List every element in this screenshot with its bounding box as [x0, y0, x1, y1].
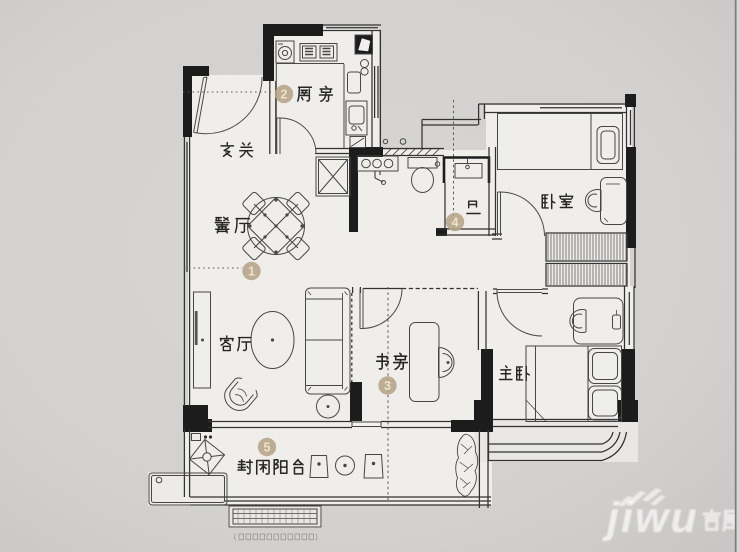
svg-text:1: 1	[248, 265, 255, 279]
svg-text:jiwu: jiwu	[602, 494, 699, 542]
svg-text:5: 5	[264, 441, 271, 455]
svg-text:3: 3	[384, 379, 391, 393]
svg-text:2: 2	[281, 88, 288, 102]
svg-text:4: 4	[452, 216, 459, 230]
